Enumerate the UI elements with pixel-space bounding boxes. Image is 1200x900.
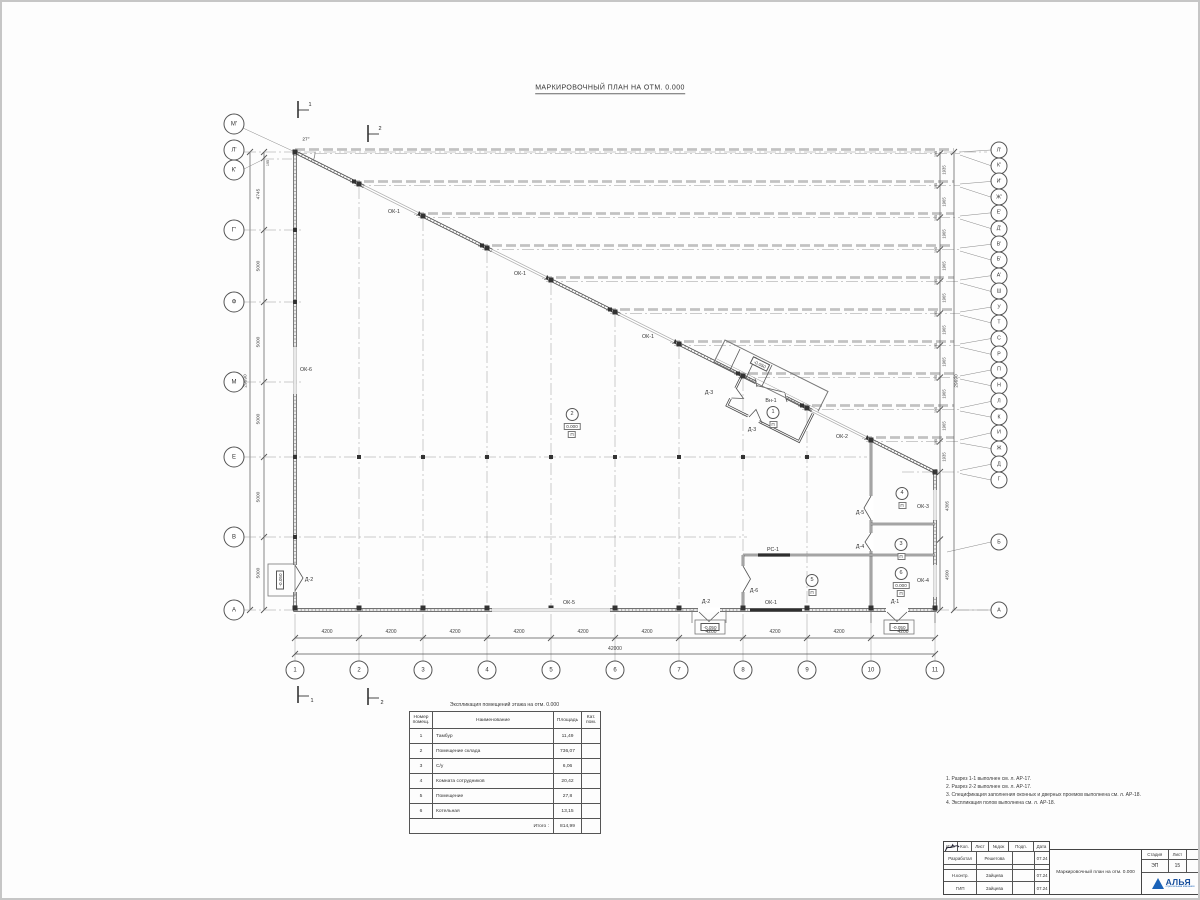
window-label-ok1: ОК-1: [642, 334, 654, 340]
explication-cell: 4: [410, 774, 433, 789]
room-marker-1: 1 П: [767, 406, 780, 428]
floor-type: П: [769, 421, 777, 428]
explication-title: Экспликация помещений этажа на отм. 0.00…: [409, 702, 600, 708]
axis-circle-right: Л': [991, 142, 1008, 159]
dim-label: 4200: [641, 629, 652, 635]
axis-circle-left: М': [224, 114, 245, 135]
floor-type: П: [808, 589, 816, 596]
dim-label: 1935: [941, 452, 946, 461]
axis-circle-bottom: 7: [670, 661, 689, 680]
dim-label: 4200: [705, 629, 716, 635]
total-empty-cell: [582, 819, 601, 834]
dim-label: 195: [934, 343, 938, 349]
logo-subtext: строительная компания: [1166, 886, 1195, 889]
door-label-d2: Д-2: [305, 577, 313, 583]
dim-label: 1965: [941, 389, 946, 398]
door-label-d4: Д-4: [856, 544, 864, 550]
title-block-revision-table: Изм. Кол. Лист №док Подп. Дата Разработа…: [943, 841, 1050, 895]
title-block: Изм. Кол. Лист №док Подп. Дата Разработа…: [943, 841, 1200, 895]
floor-type: П: [898, 502, 906, 509]
doors: [293, 496, 908, 622]
explication-cell: Помещение склада: [433, 744, 554, 759]
room-marker-6: 6 0.000 П: [893, 567, 910, 597]
tb-role: ГИП: [944, 882, 977, 894]
col-header-name: Наименование: [433, 712, 554, 729]
dim-label: 4200: [897, 629, 908, 635]
note-line: 4. Экспликация полов выполнена см. л. АР…: [946, 799, 1196, 807]
grid-and-dimension-lines: [243, 128, 991, 661]
tb-header: Подп.: [1009, 842, 1034, 852]
dim-label: 195: [934, 215, 938, 221]
tb-date: 07.24: [1035, 870, 1049, 882]
axis-circle-left: А: [224, 600, 245, 621]
tb-name: Решетова: [977, 852, 1012, 865]
explication-cell: 11,49: [554, 729, 582, 744]
axis-circle-left: Г': [224, 220, 245, 241]
room-level: 0.000: [893, 582, 910, 589]
explication-cell: С/у: [433, 759, 554, 774]
dim-label: 1965: [941, 421, 946, 430]
signature: [1013, 852, 1036, 865]
dim-label: 195: [266, 160, 270, 166]
room-marker-3: 3 П: [895, 538, 908, 560]
dim-label: 1965: [941, 325, 946, 334]
axis-circle-right: Ж': [991, 189, 1008, 206]
window-label-ok2: ОК-2: [836, 434, 848, 440]
col-header-number: Номер помещ.: [410, 712, 433, 729]
dim-label: 5000: [257, 337, 262, 348]
dim-label: 4200: [513, 629, 524, 635]
door-label-d2: Д-2: [702, 599, 710, 605]
axis-circle-right: Ж: [991, 440, 1008, 457]
explication-row: 5Помещение27,8: [410, 789, 601, 804]
shutter-label-rs1: РС-1: [767, 547, 779, 553]
signature: [1013, 882, 1036, 894]
axis-circle-bottom: 3: [414, 661, 433, 680]
axis-circle-bottom: 4: [478, 661, 497, 680]
section-label-1-top: 1: [308, 102, 311, 108]
dim-label: 4200: [385, 629, 396, 635]
dim-label: 195: [934, 279, 938, 285]
axis-circle-right: А: [991, 602, 1008, 619]
window-label-ok1: ОК-1: [514, 271, 526, 277]
door-label-d3: Д-3: [705, 390, 713, 396]
stage-value: ЭП: [1142, 860, 1169, 873]
room-number: 2: [566, 408, 579, 421]
tb-header: Лист: [972, 842, 989, 852]
axis-circle-right: Г: [991, 471, 1008, 488]
explication-cell: 2: [410, 744, 433, 759]
dim-label: 29690: [955, 374, 960, 387]
axis-circle-bottom: 6: [606, 661, 625, 680]
dim-label: 4305: [945, 501, 950, 511]
axis-circle-left: Ф: [224, 292, 245, 313]
explication-cell: Тамбур: [433, 729, 554, 744]
room-number: 6: [895, 567, 908, 580]
floor-type: П: [568, 431, 576, 438]
dim-label: 4200: [833, 629, 844, 635]
level-mark: -0.050: [276, 570, 284, 589]
door-label-d6: Д-6: [750, 588, 758, 594]
explication-cell: 27,8: [554, 789, 582, 804]
tb-header: №док: [989, 842, 1009, 852]
dim-label: 4200: [449, 629, 460, 635]
title-block-doc-title-cell: Маркировочный план на отм. 0.000: [1050, 849, 1142, 895]
dim-label: 42000: [608, 646, 622, 652]
tb-date: 07.24: [1035, 882, 1049, 894]
explication-row: 3С/у6,06: [410, 759, 601, 774]
section-label-2-bottom: 2: [380, 700, 383, 706]
axis-circle-bottom: 1: [286, 661, 305, 680]
axis-circle-left: Л': [224, 140, 245, 161]
section-label-1-bottom: 1: [310, 698, 313, 704]
window-label-ok4: ОК-4: [917, 578, 929, 584]
window-label-ok6: ОК-6: [300, 367, 312, 373]
axis-circle-right: Б: [991, 534, 1008, 551]
dim-label: 4200: [577, 629, 588, 635]
window-label-ok1: ОК-1: [765, 600, 777, 606]
note-line: 1. Разрез 1-1 выполнен см. л. АР-17.: [946, 775, 1196, 783]
dim-label: 195: [934, 439, 938, 445]
axis-circle-right: Л: [991, 393, 1008, 410]
room-number: 4: [896, 487, 909, 500]
dim-label: 195: [934, 183, 938, 189]
col-header-area: Площадь: [554, 712, 582, 729]
dim-label: 5000: [257, 414, 262, 425]
explication-cell: 6,06: [554, 759, 582, 774]
sheet-value: 15: [1169, 860, 1188, 873]
explication-total-row: Итого :814,99: [410, 819, 601, 834]
col-header-category: Кат. пом.: [582, 712, 601, 729]
gate-label-vn1: Вн-1: [765, 398, 776, 404]
dim-label: 5000: [257, 492, 262, 503]
axis-circle-bottom: 10: [862, 661, 881, 680]
axis-circle-bottom: 11: [926, 661, 945, 680]
axis-circle-right: К': [991, 157, 1008, 174]
explication-cell: 6: [410, 804, 433, 819]
axis-circle-right: Б': [991, 251, 1008, 268]
axis-circle-left: К': [224, 160, 245, 181]
axis-circle-bottom: 8: [734, 661, 753, 680]
total-value: 814,99: [554, 819, 582, 834]
dim-label: 4745: [257, 189, 262, 200]
tb-date: 07.24: [1035, 852, 1049, 865]
explication-cell: 3: [410, 759, 433, 774]
explication-cell: 13,15: [554, 804, 582, 819]
tb-header: Дата: [1034, 842, 1049, 852]
axis-circle-right: Н: [991, 377, 1008, 394]
room-number: 3: [895, 538, 908, 551]
section-label-2-top: 2: [378, 126, 381, 132]
drawing-sheet: МАРКИРОВОЧНЫЙ ПЛАН НА ОТМ. 0.000: [0, 0, 1200, 900]
window-label-ok5: ОК-5: [563, 600, 575, 606]
section-marks: [298, 101, 379, 705]
dim-label: 195: [934, 151, 938, 157]
company-logo: АЛЬЯ строительная компания: [1142, 873, 1200, 894]
axis-circle-right: Р: [991, 346, 1008, 363]
room-level: 0.000: [564, 423, 581, 430]
axis-circle-right: С: [991, 330, 1008, 347]
dim-label: 1965: [941, 293, 946, 302]
explication-cell: 1: [410, 729, 433, 744]
floor-plan-drawing: [2, 2, 1200, 900]
logo-triangle-icon: [1152, 878, 1164, 889]
dim-label: 1965: [941, 357, 946, 366]
dim-label: 4200: [321, 629, 332, 635]
note-line: 2. Разрез 2-2 выполнен см. л. АР-17.: [946, 783, 1196, 791]
room-marker-2: 2 0.000 П: [564, 408, 581, 438]
room-number: 1: [767, 406, 780, 419]
dim-label: 5000: [257, 261, 262, 272]
axis-circle-right: Т: [991, 314, 1008, 331]
axis-circle-right: К: [991, 409, 1008, 426]
axis-circle-bottom: 2: [350, 661, 369, 680]
dim-label: 195: [934, 311, 938, 317]
axis-circle-right: Д': [991, 220, 1008, 237]
tb-name: Зайцева: [977, 882, 1012, 894]
explication-row: 2Помещение склада736,07: [410, 744, 601, 759]
axis-circle-right: И': [991, 173, 1008, 190]
note-line: 3. Спецификация заполнения оконных и две…: [946, 791, 1196, 799]
dim-label: 1965: [941, 261, 946, 270]
doc-title: Маркировочный план на отм. 0.000: [1056, 870, 1135, 875]
tb-name: Зайцева: [977, 870, 1012, 882]
explication-cell: [582, 804, 601, 819]
angle-label: 27°: [302, 138, 309, 143]
dim-label: 5000: [257, 568, 262, 579]
explication-cell: [582, 789, 601, 804]
explication-table: Экспликация помещений этажа на отм. 0.00…: [409, 702, 600, 834]
axis-circle-left: В: [224, 527, 245, 548]
dim-label: 195: [934, 407, 938, 413]
explication-row: 4Комната сотрудников20,42: [410, 774, 601, 789]
dim-label: 4200: [769, 629, 780, 635]
explication-cell: [582, 774, 601, 789]
stage-label: Стадия: [1142, 850, 1169, 860]
sheet-label: Лист: [1169, 850, 1188, 860]
explication-cell: [582, 744, 601, 759]
floor-type: П: [897, 553, 905, 560]
explication-cell: [582, 729, 601, 744]
axis-circle-right: Е': [991, 204, 1008, 221]
total-label: Итого :: [410, 819, 554, 834]
dim-label: 1965: [941, 197, 946, 206]
room-marker-4: 4 П: [896, 487, 909, 509]
explication-row: 6Котельная13,15: [410, 804, 601, 819]
explication-cell: [582, 759, 601, 774]
explication-row: 1Тамбур11,49: [410, 729, 601, 744]
floor-type: П: [897, 590, 905, 597]
axis-circle-right: А': [991, 267, 1008, 284]
window-label-ok3: ОК-3: [917, 504, 929, 510]
signature: [1013, 870, 1036, 882]
tb-role: Разработал: [944, 852, 977, 865]
axis-circle-left: М: [224, 372, 245, 393]
dim-label: 195: [934, 469, 938, 475]
window-label-ok1: ОК-1: [388, 209, 400, 215]
explication-cell: 5: [410, 789, 433, 804]
explication-cell: Котельная: [433, 804, 554, 819]
dim-label: 1935: [941, 165, 946, 174]
explication-cell: 736,07: [554, 744, 582, 759]
dim-label: 195: [934, 247, 938, 253]
notes-list: 1. Разрез 1-1 выполнен см. л. АР-17.2. Р…: [946, 775, 1196, 807]
tb-role: Н.контр.: [944, 870, 977, 882]
door-label-d1: Д-1: [891, 599, 899, 605]
axis-circle-left: Е: [224, 447, 245, 468]
axis-circle-bottom: 5: [542, 661, 561, 680]
explication-cell: 20,42: [554, 774, 582, 789]
axis-circle-right: Д: [991, 456, 1008, 473]
dim-label: 195: [934, 375, 938, 381]
axis-circle-right: Ш: [991, 283, 1008, 300]
dim-label: 4500: [945, 570, 950, 580]
axis-circle-right: В': [991, 236, 1008, 253]
explication-cell: Помещение: [433, 789, 554, 804]
title-block-stage-sheet: Стадия Лист ЭП 15 АЛЬЯ строительная комп…: [1142, 849, 1200, 895]
door-label-d5: Д-5: [856, 510, 864, 516]
axis-circle-right: П: [991, 361, 1008, 378]
axis-circle-bottom: 9: [798, 661, 817, 680]
axis-circle-right: У: [991, 299, 1008, 316]
dim-label: 1965: [941, 229, 946, 238]
axis-circle-right: И: [991, 424, 1008, 441]
explication-cell: Комната сотрудников: [433, 774, 554, 789]
room-number: 5: [806, 574, 819, 587]
door-label-d3: Д-3: [748, 427, 756, 433]
room-marker-5: 5 П: [806, 574, 819, 596]
porches: [268, 564, 935, 634]
